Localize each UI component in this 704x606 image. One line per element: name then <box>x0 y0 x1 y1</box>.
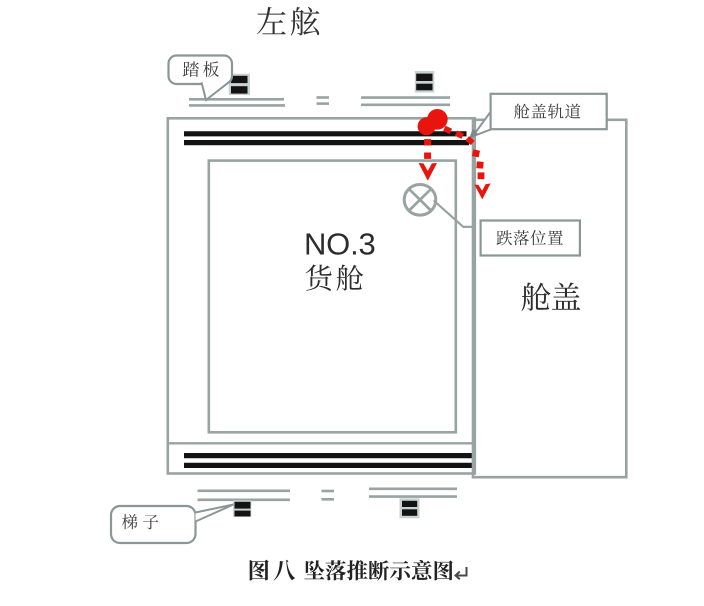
svg-text:舱盖: 舱盖 <box>521 273 581 318</box>
svg-text:坠落推断示意图: 坠落推断示意图 <box>304 555 455 586</box>
svg-text:梯子: 梯子 <box>122 509 164 533</box>
svg-text:图八: 图八 <box>248 554 299 586</box>
svg-text:左舷: 左舷 <box>256 0 323 42</box>
svg-text:货舱: 货舱 <box>305 257 367 298</box>
svg-text:踏板: 踏板 <box>183 56 223 81</box>
svg-text:跌落位置: 跌落位置 <box>496 225 564 249</box>
svg-text:舱盖轨道: 舱盖轨道 <box>514 99 582 123</box>
